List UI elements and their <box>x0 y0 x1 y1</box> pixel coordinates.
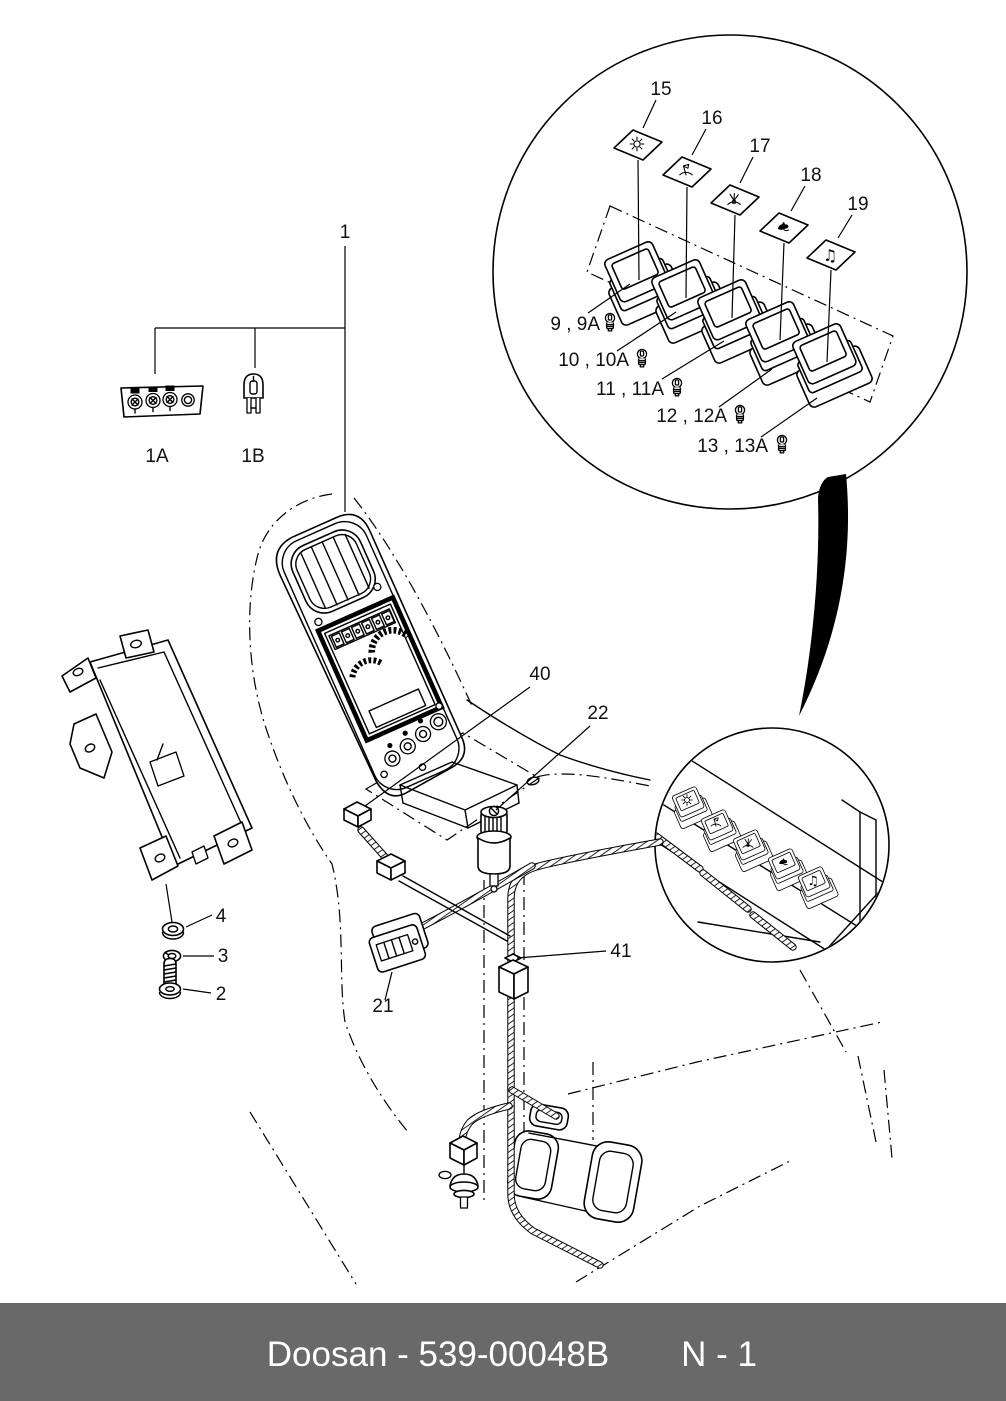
callout-16: 16 <box>701 108 722 129</box>
diagram-canvas: 1 <box>0 0 1006 1401</box>
footer-bar: Doosan - 539-00048B N - 1 <box>0 1303 1006 1401</box>
footer-document-number: Doosan - 539-00048B <box>267 1335 609 1374</box>
callout-11-11a: 11 , 11A <box>596 379 664 400</box>
callout-3: 3 <box>218 946 229 967</box>
callout-1a: 1A <box>145 446 169 467</box>
callout-17: 17 <box>749 136 770 157</box>
callout-4: 4 <box>216 906 227 927</box>
washer-ring <box>439 1171 451 1178</box>
detail-circle-switch-bank: ♫ 15 16 17 18 19 9 , 9A 10 <box>493 35 967 509</box>
callout-18: 18 <box>800 165 821 186</box>
callout-1b: 1B <box>241 446 264 467</box>
callout-12-12a: 12 , 12A <box>656 406 727 427</box>
audio-icon: ♫ <box>823 246 837 265</box>
parts-diagram-page: 1 <box>0 0 1006 1401</box>
callout-13-13a: 13 , 13A <box>697 436 768 457</box>
callout-41: 41 <box>610 941 631 962</box>
indicator-block-1a <box>121 386 203 418</box>
callout-21: 21 <box>372 996 393 1017</box>
callout-15: 15 <box>650 79 671 100</box>
callout-9-9a: 9 , 9A <box>550 314 600 335</box>
callout-1: 1 <box>340 222 351 243</box>
callout-22: 22 <box>587 703 608 724</box>
footer-page-number: N - 1 <box>681 1335 757 1374</box>
callout-2: 2 <box>216 984 227 1005</box>
callout-10-10a: 10 , 10A <box>558 350 629 371</box>
callout-19: 19 <box>847 194 868 215</box>
callout-40: 40 <box>529 664 550 685</box>
audio-icon: ♫ <box>807 874 819 889</box>
